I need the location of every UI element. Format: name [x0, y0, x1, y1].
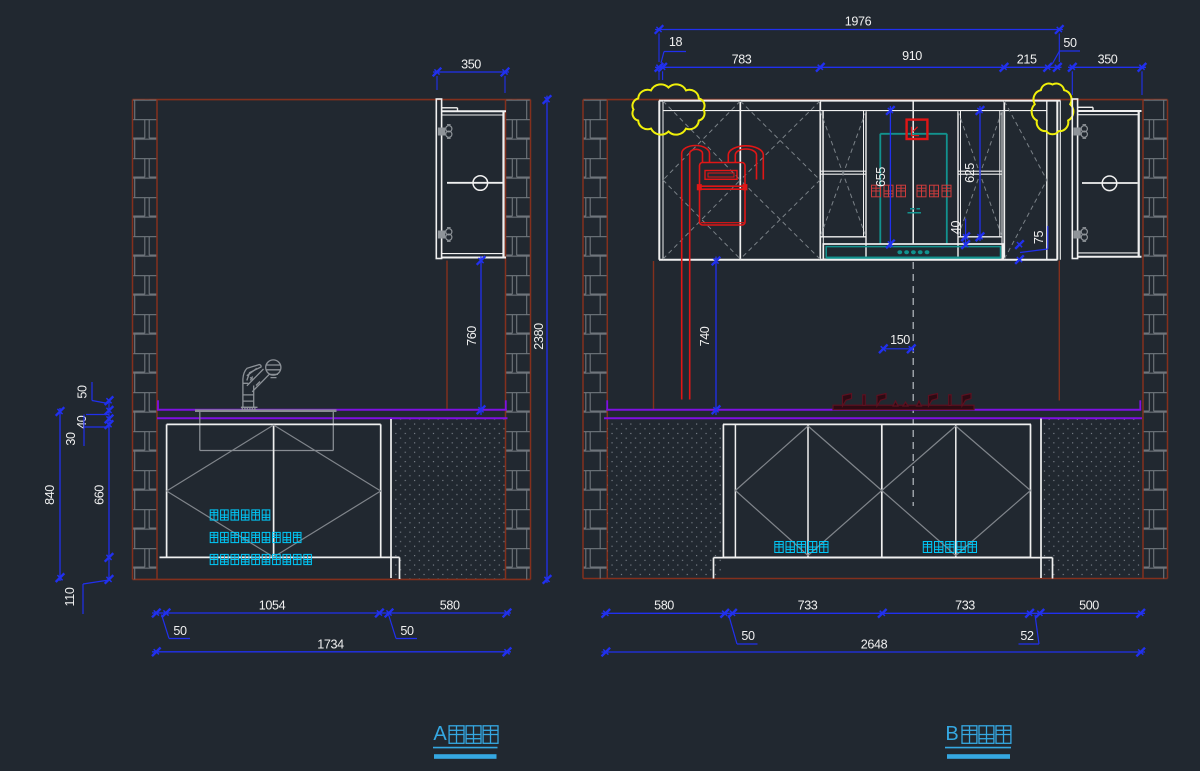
svg-text:30: 30 — [64, 432, 78, 446]
svg-text:50: 50 — [173, 624, 187, 638]
svg-text:783: 783 — [732, 52, 752, 66]
svg-text:50: 50 — [741, 629, 755, 643]
svg-text:52: 52 — [1020, 629, 1034, 643]
svg-text:500: 500 — [1079, 598, 1099, 612]
svg-text:110: 110 — [63, 587, 77, 606]
svg-text:580: 580 — [440, 598, 460, 612]
svg-text:580: 580 — [654, 598, 674, 612]
svg-text:660: 660 — [92, 485, 106, 505]
svg-text:655: 655 — [874, 167, 888, 187]
svg-text:1976: 1976 — [845, 14, 872, 28]
svg-text:2380: 2380 — [532, 323, 546, 350]
svg-text:50: 50 — [400, 624, 414, 638]
svg-text:75: 75 — [1032, 231, 1046, 245]
svg-text:350: 350 — [1098, 52, 1118, 66]
svg-text:18: 18 — [669, 35, 683, 49]
svg-text:350: 350 — [461, 57, 481, 71]
svg-text:50: 50 — [75, 385, 89, 399]
svg-text:840: 840 — [43, 485, 57, 505]
svg-text:B: B — [945, 723, 958, 745]
svg-text:910: 910 — [902, 49, 922, 63]
svg-text:733: 733 — [955, 598, 975, 612]
svg-text:40: 40 — [949, 221, 963, 235]
svg-text:760: 760 — [465, 326, 479, 346]
svg-text:2648: 2648 — [861, 637, 888, 651]
svg-text:1734: 1734 — [317, 637, 344, 651]
svg-text:50: 50 — [1063, 36, 1077, 50]
svg-text:150: 150 — [890, 333, 910, 347]
svg-text:215: 215 — [1017, 52, 1037, 66]
svg-text:A: A — [433, 723, 447, 745]
svg-text:733: 733 — [798, 598, 818, 612]
svg-text:1054: 1054 — [259, 598, 286, 612]
svg-text:740: 740 — [698, 326, 712, 346]
svg-text:625: 625 — [963, 163, 977, 183]
